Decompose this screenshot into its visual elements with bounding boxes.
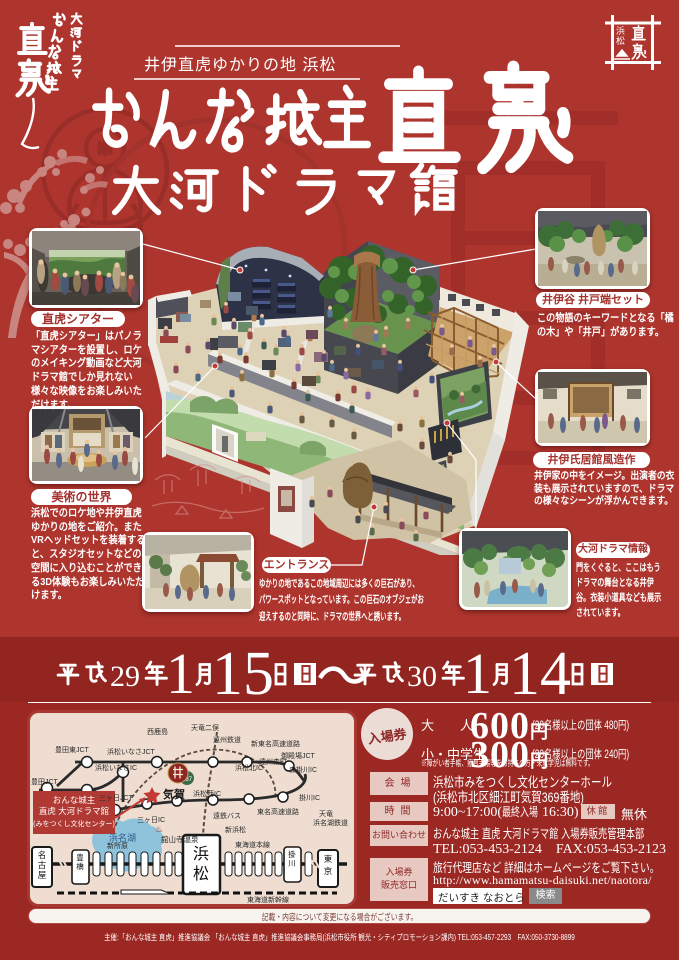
svg-text:直虎 大河ドラマ館: 直虎 大河ドラマ館 — [39, 806, 109, 816]
svg-text:東名高速道路: 東名高速道路 — [257, 807, 299, 816]
svg-text:天竜二俣: 天竜二俣 — [191, 723, 219, 732]
svg-text:浜名湖: 浜名湖 — [109, 832, 136, 843]
svg-text:東: 東 — [324, 854, 333, 864]
svg-text:豊田東JCT: 豊田東JCT — [55, 745, 90, 754]
svg-text:14: 14 — [509, 646, 571, 702]
svg-text:気賀: 気賀 — [163, 787, 185, 801]
svg-text:三ヶ日JCT: 三ヶ日JCT — [99, 794, 134, 802]
svg-text:(みをつくし文化センター): (みをつくし文化センター) — [33, 819, 115, 828]
svg-text:屋: 屋 — [38, 870, 47, 880]
svg-text:掛: 掛 — [288, 849, 296, 859]
svg-text:森掛川IC: 森掛川IC — [289, 765, 317, 774]
svg-text:新浜松: 新浜松 — [225, 825, 246, 834]
svg-text:東海道新幹線: 東海道新幹線 — [247, 895, 289, 904]
svg-text:浜松いなさJCT: 浜松いなさJCT — [107, 747, 156, 756]
svg-text:おんな城主: おんな城主 — [53, 795, 96, 805]
svg-text:浜名湖鉄道: 浜名湖鉄道 — [313, 818, 348, 827]
svg-text:29: 29 — [110, 660, 140, 693]
svg-text:遠州森町: 遠州森町 — [259, 757, 287, 766]
svg-text:西鹿島: 西鹿島 — [147, 727, 168, 736]
svg-text:30: 30 — [407, 660, 437, 693]
svg-text:新東名高速道路: 新東名高速道路 — [251, 739, 300, 748]
svg-text:♨: ♨ — [155, 824, 163, 834]
svg-text:川: 川 — [288, 859, 296, 868]
svg-text:掛川IC: 掛川IC — [299, 793, 320, 802]
svg-text:古: 古 — [38, 860, 47, 870]
svg-text:15: 15 — [212, 646, 274, 702]
svg-text:豊: 豊 — [76, 852, 84, 862]
svg-text:橋: 橋 — [76, 861, 84, 871]
svg-text:京: 京 — [324, 866, 333, 876]
svg-text:遠鉄バス: 遠鉄バス — [213, 811, 241, 820]
svg-text:遠州鉄道: 遠州鉄道 — [213, 735, 241, 744]
svg-text:1: 1 — [166, 646, 195, 702]
svg-text:名: 名 — [38, 850, 47, 860]
svg-text:三ヶ日IC: 三ヶ日IC — [137, 816, 165, 824]
svg-text:松: 松 — [193, 865, 209, 883]
svg-text:天竜: 天竜 — [319, 809, 333, 818]
svg-text:東海道本線: 東海道本線 — [235, 840, 270, 849]
svg-text:浜松西IC: 浜松西IC — [193, 789, 221, 798]
svg-text:浜松いなさIC: 浜松いなさIC — [95, 763, 137, 772]
svg-text:1: 1 — [463, 646, 492, 702]
svg-text:舘山寺温泉: 舘山寺温泉 — [161, 834, 199, 844]
svg-text:浜: 浜 — [193, 845, 209, 863]
svg-text:豊田JCT: 豊田JCT — [31, 777, 59, 786]
